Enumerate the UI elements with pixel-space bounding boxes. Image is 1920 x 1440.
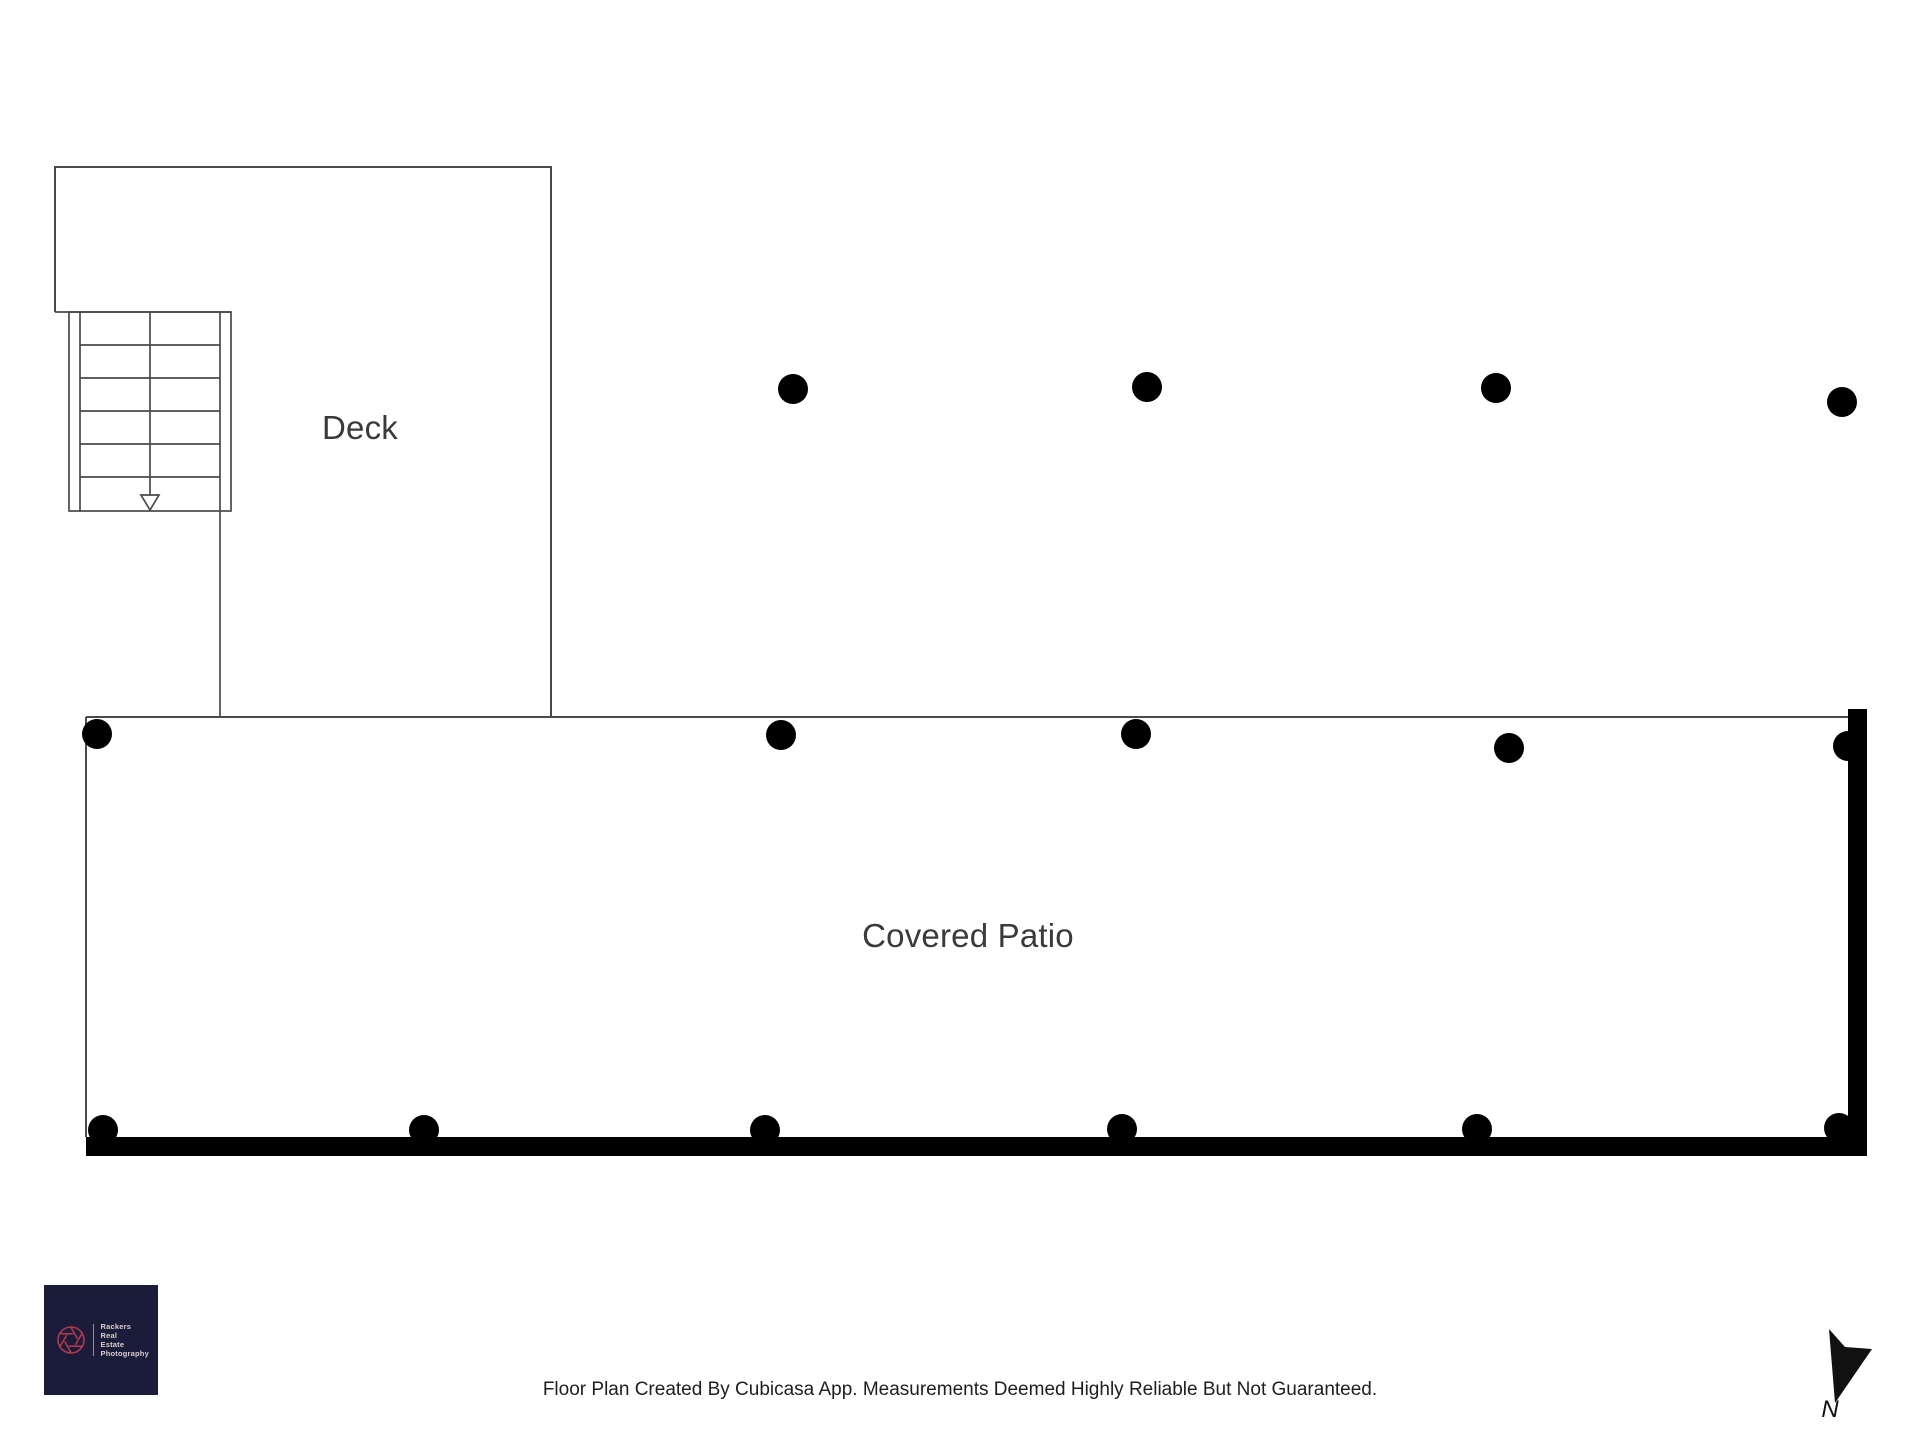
stair-down-arrow-icon: [141, 495, 159, 510]
logo-text: Rackers Real Estate Photography: [101, 1322, 147, 1358]
post-dot: [82, 719, 112, 749]
logo-text-line: Estate: [101, 1340, 147, 1349]
deck-outline: [55, 167, 551, 716]
logo-text-line: Real: [101, 1331, 147, 1340]
post-dot: [750, 1115, 780, 1145]
post-dot: [1121, 719, 1151, 749]
north-label: N: [1812, 1396, 1848, 1424]
post-dot: [766, 720, 796, 750]
post-dot: [1481, 373, 1511, 403]
disclaimer-text: Floor Plan Created By Cubicasa App. Meas…: [0, 1379, 1920, 1401]
post-dot: [1494, 733, 1524, 763]
post-dot: [1462, 1114, 1492, 1144]
deck-room-label: Deck: [322, 409, 398, 447]
patio-posts: [82, 372, 1863, 1145]
post-dot: [1827, 387, 1857, 417]
staircase: [55, 312, 231, 717]
logo-badge: Rackers Real Estate Photography: [44, 1285, 158, 1395]
logo-divider: [93, 1324, 94, 1356]
post-dot: [88, 1115, 118, 1145]
post-dot: [1132, 372, 1162, 402]
floor-plan-drawing: [0, 0, 1920, 1440]
floor-plan-page: Deck Covered Patio Floor Plan Created By…: [0, 0, 1920, 1440]
logo-text-line: Rackers: [101, 1322, 147, 1331]
post-dot: [778, 374, 808, 404]
post-dot: [1107, 1114, 1137, 1144]
post-dot: [409, 1115, 439, 1145]
patio-right-wall: [1848, 709, 1867, 1156]
post-dot: [1824, 1113, 1854, 1143]
north-arrow-icon: [1790, 1300, 1920, 1440]
camera-aperture-icon: [56, 1325, 86, 1355]
post-dot: [1833, 731, 1863, 761]
covered-patio-room-label: Covered Patio: [862, 917, 1074, 955]
logo-text-line: Photography: [101, 1349, 147, 1358]
floorplan-lines: [55, 167, 1848, 1137]
patio-bottom-wall: [86, 1137, 1867, 1156]
